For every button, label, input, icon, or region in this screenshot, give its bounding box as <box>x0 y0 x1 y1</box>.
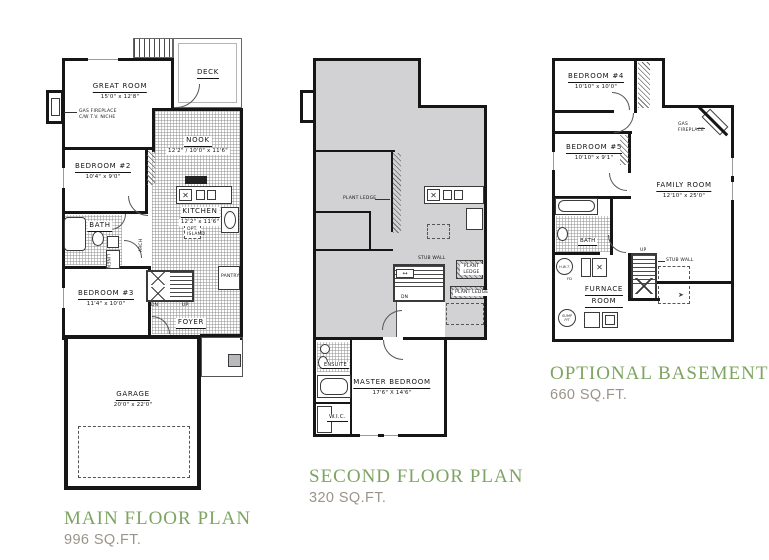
wall-segment <box>552 252 600 255</box>
bathtub-inner <box>558 200 595 212</box>
wall-segment <box>552 110 614 113</box>
floor-plans-sheet: ✕ GREAT ROOM 15'0" x 12'8" <box>0 0 769 560</box>
door-arc <box>614 113 634 133</box>
bath-label: BATH <box>578 238 597 246</box>
wall-segment <box>731 105 734 342</box>
furnace-unit <box>581 258 591 277</box>
toilet <box>557 227 568 241</box>
basement-plan: BEDROOM #4 10'10" x 10'0" GAS FIREPLACE … <box>0 0 769 560</box>
fireplace-leader <box>697 128 705 129</box>
bedroom4-label: BEDROOM #4 10'10" x 10'0" <box>568 72 624 91</box>
laundry-unit <box>584 312 600 328</box>
wall-segment <box>552 339 734 342</box>
direction-arrow-icon: ➤ <box>678 291 684 300</box>
wall-segment <box>657 281 731 284</box>
wall-segment <box>552 58 665 61</box>
door-arc <box>612 92 630 110</box>
furnace-unit-x: ✕ <box>592 258 607 277</box>
hot-water-tank: H.W.T. <box>556 258 573 275</box>
bedroom5-label: BEDROOM #5 10'10" x 9'1" <box>566 143 622 162</box>
sump-pit: SUMP PIT <box>558 309 576 327</box>
closet-bedroom4 <box>638 62 650 108</box>
wall-segment <box>662 58 665 108</box>
window-line <box>732 182 733 200</box>
window-line <box>732 158 733 176</box>
basement-area: 660 SQ.FT. <box>550 387 627 403</box>
wall-segment <box>628 298 660 301</box>
laundry-unit-inner <box>605 315 615 325</box>
stub-wall-leader <box>658 261 665 262</box>
family-room-label: FAMILY ROOM 12'10" x 25'0" <box>656 181 711 200</box>
door-arc <box>609 173 627 191</box>
floor-drain-label: FD <box>567 277 572 281</box>
window-line <box>553 152 554 170</box>
up-label: UP <box>640 248 646 254</box>
gas-fireplace-label-1: GAS <box>678 122 688 128</box>
stub-wall-label: STUB WALL <box>666 258 694 264</box>
stair-brace <box>633 278 655 294</box>
furnace-room-label: FURNACE ROOM <box>585 285 623 308</box>
stair-path-dashed <box>658 266 690 304</box>
wall-segment <box>634 58 637 113</box>
basement-title: OPTIONAL BASEMENT PLAN <box>550 363 769 385</box>
